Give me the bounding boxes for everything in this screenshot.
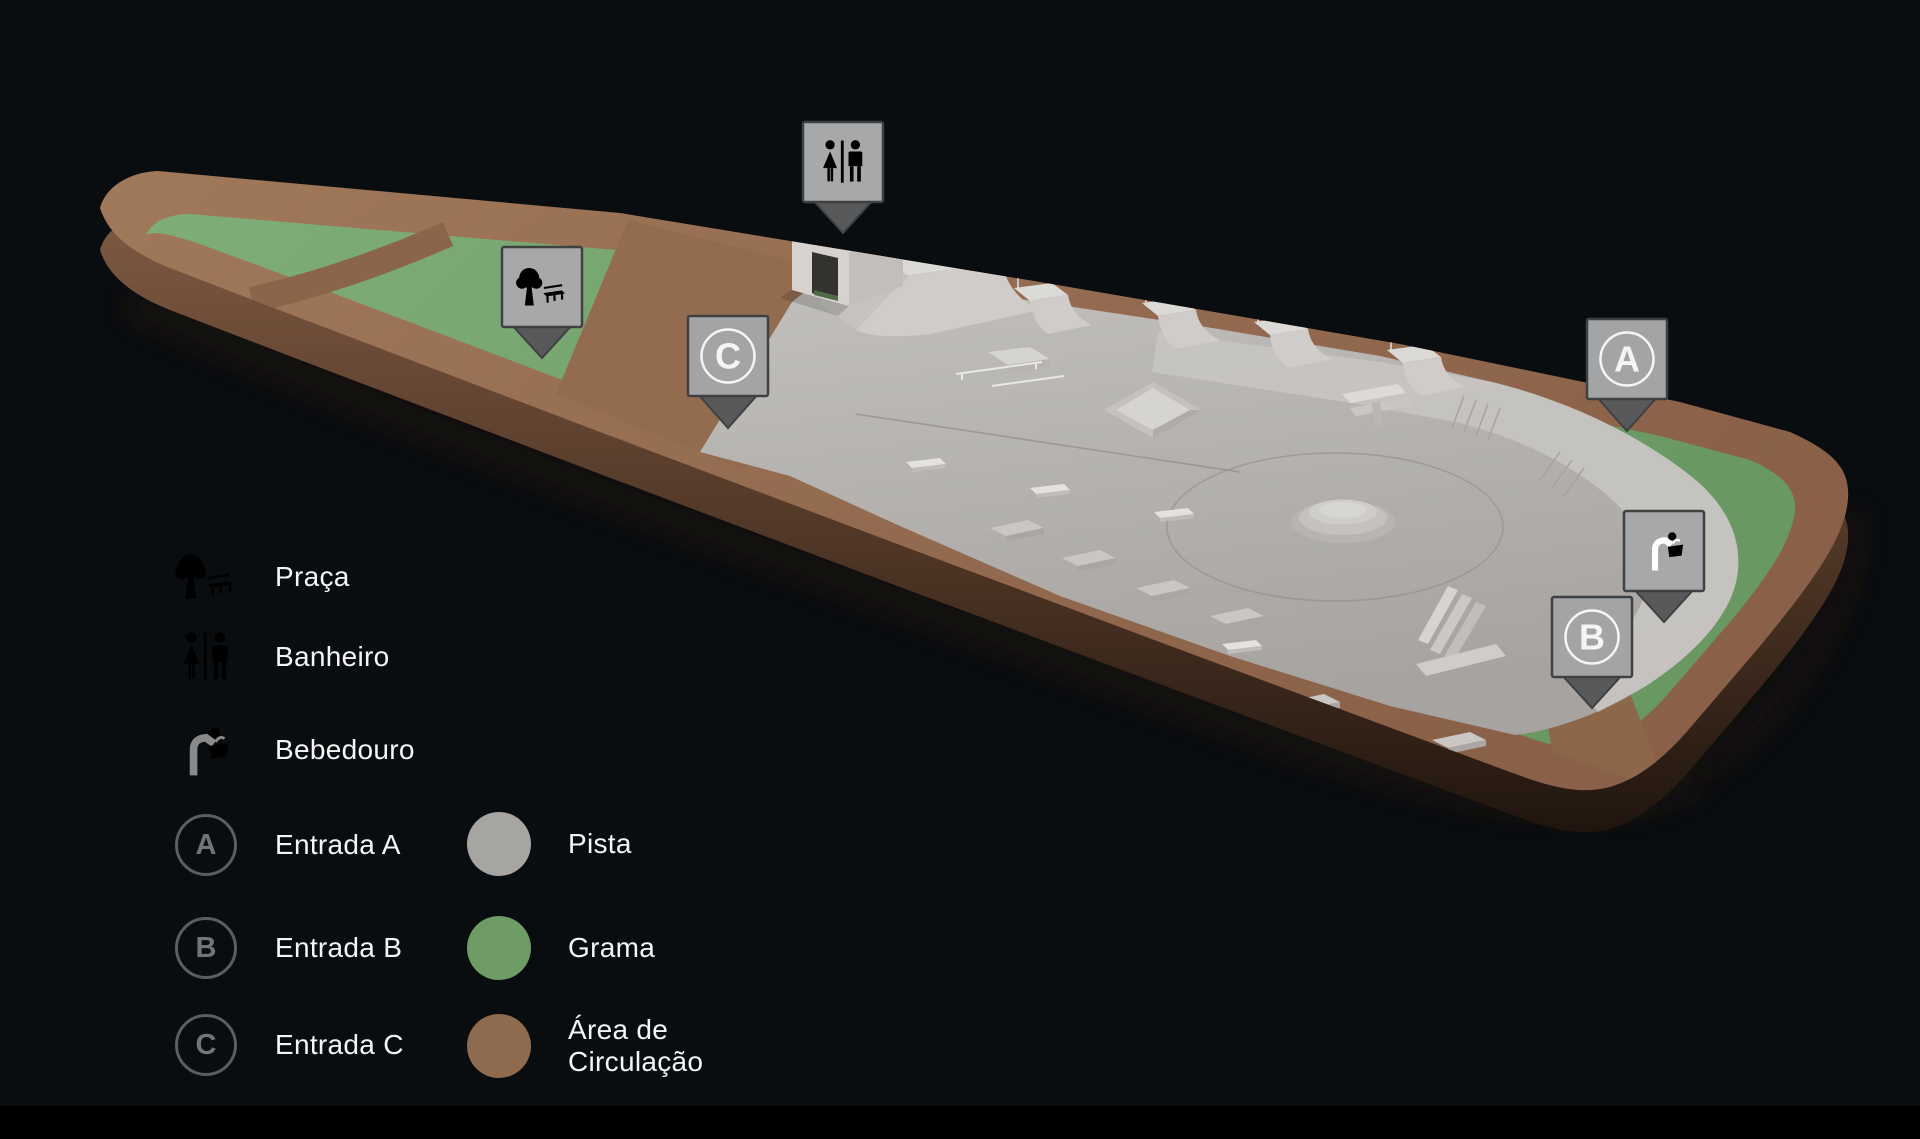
skatepark-map-poster: C A B Praça Banheiro Bebedouro xyxy=(0,0,1920,1139)
entrance-b-letter: B xyxy=(1579,617,1605,658)
entrance-a-letter: A xyxy=(1614,339,1640,380)
bottom-bar xyxy=(0,1106,1920,1139)
entrance-c-letter: C xyxy=(715,336,741,377)
park-3d-scene: C A B xyxy=(0,0,1920,1139)
